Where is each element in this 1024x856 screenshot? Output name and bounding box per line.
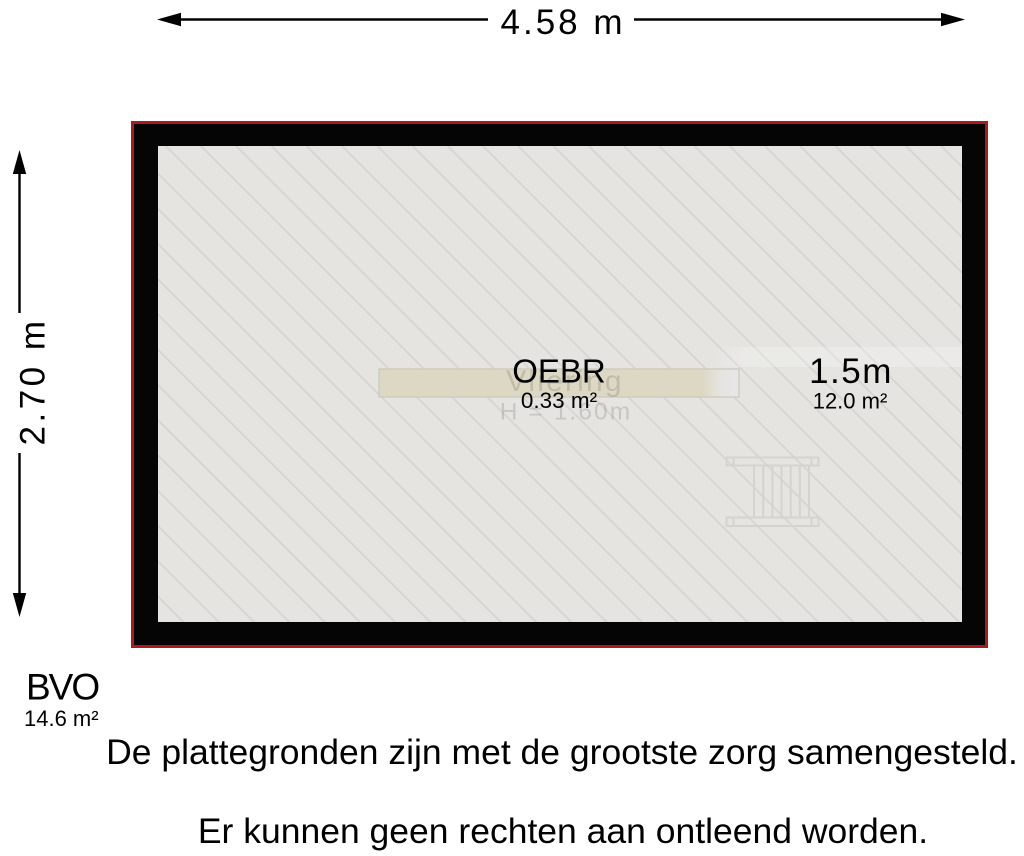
svg-text:12.0 m²: 12.0 m²: [813, 389, 888, 414]
svg-text:0.33 m²: 0.33 m²: [521, 388, 598, 413]
svg-text:BVO: BVO: [26, 667, 99, 708]
svg-text:OEBR: OEBR: [512, 353, 606, 390]
svg-text:1.5m: 1.5m: [809, 352, 893, 391]
svg-text:2.70 m: 2.70 m: [14, 318, 53, 446]
svg-text:Er kunnen geen rechten aan ont: Er kunnen geen rechten aan ontleend word…: [198, 811, 928, 851]
svg-text:14.6 m²: 14.6 m²: [24, 706, 99, 731]
svg-text:De plattegronden zijn met de g: De plattegronden zijn met de grootste zo…: [106, 732, 1018, 772]
svg-text:4.58 m: 4.58 m: [501, 3, 626, 42]
